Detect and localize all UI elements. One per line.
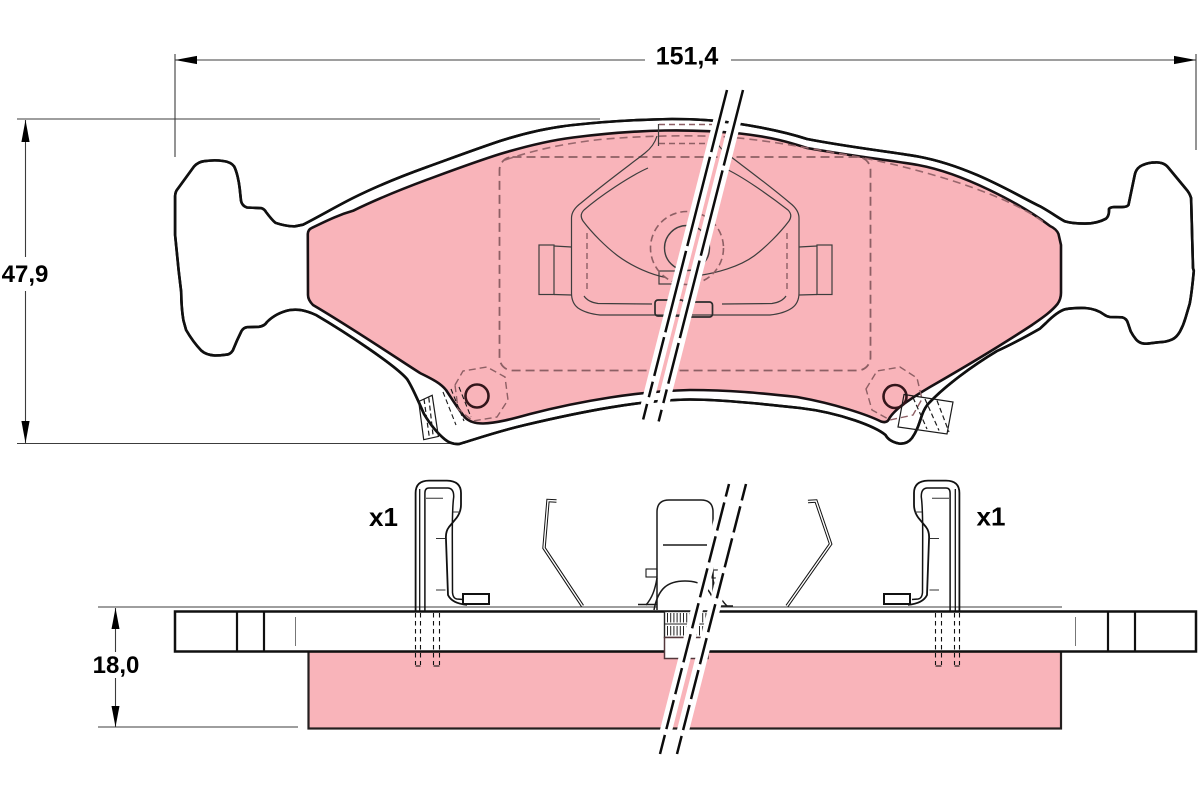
- svg-text:18,0: 18,0: [93, 652, 140, 679]
- svg-text:151,4: 151,4: [656, 43, 719, 71]
- svg-text:x1: x1: [369, 502, 398, 532]
- svg-text:x1: x1: [977, 502, 1006, 532]
- svg-text:47,9: 47,9: [2, 261, 49, 288]
